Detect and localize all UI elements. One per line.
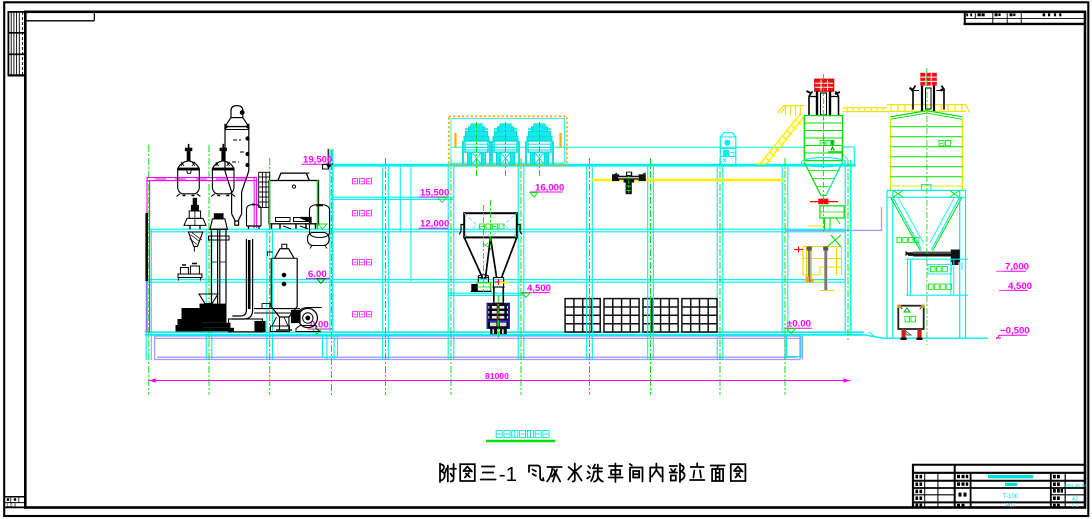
svg-text:T-100: T-100 xyxy=(1003,494,1019,500)
svg-text:-1: -1 xyxy=(499,463,517,486)
svg-text:A2: A2 xyxy=(1072,497,1078,503)
svg-text:1 1: 1 1 xyxy=(1072,503,1079,509)
svg-text:2002.05.23: 2002.05.23 xyxy=(1064,483,1087,488)
svg-text:P07: P07 xyxy=(1006,503,1016,509)
svg-text:81000: 81000 xyxy=(485,371,509,381)
svg-text:1.5 /I: 1.5 /I xyxy=(6,503,16,508)
